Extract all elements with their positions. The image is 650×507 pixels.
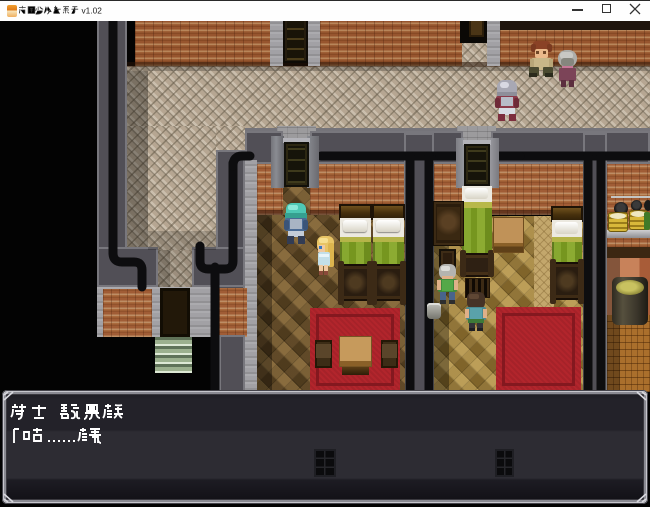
svg-text:v1.02: v1.02: [82, 5, 103, 15]
